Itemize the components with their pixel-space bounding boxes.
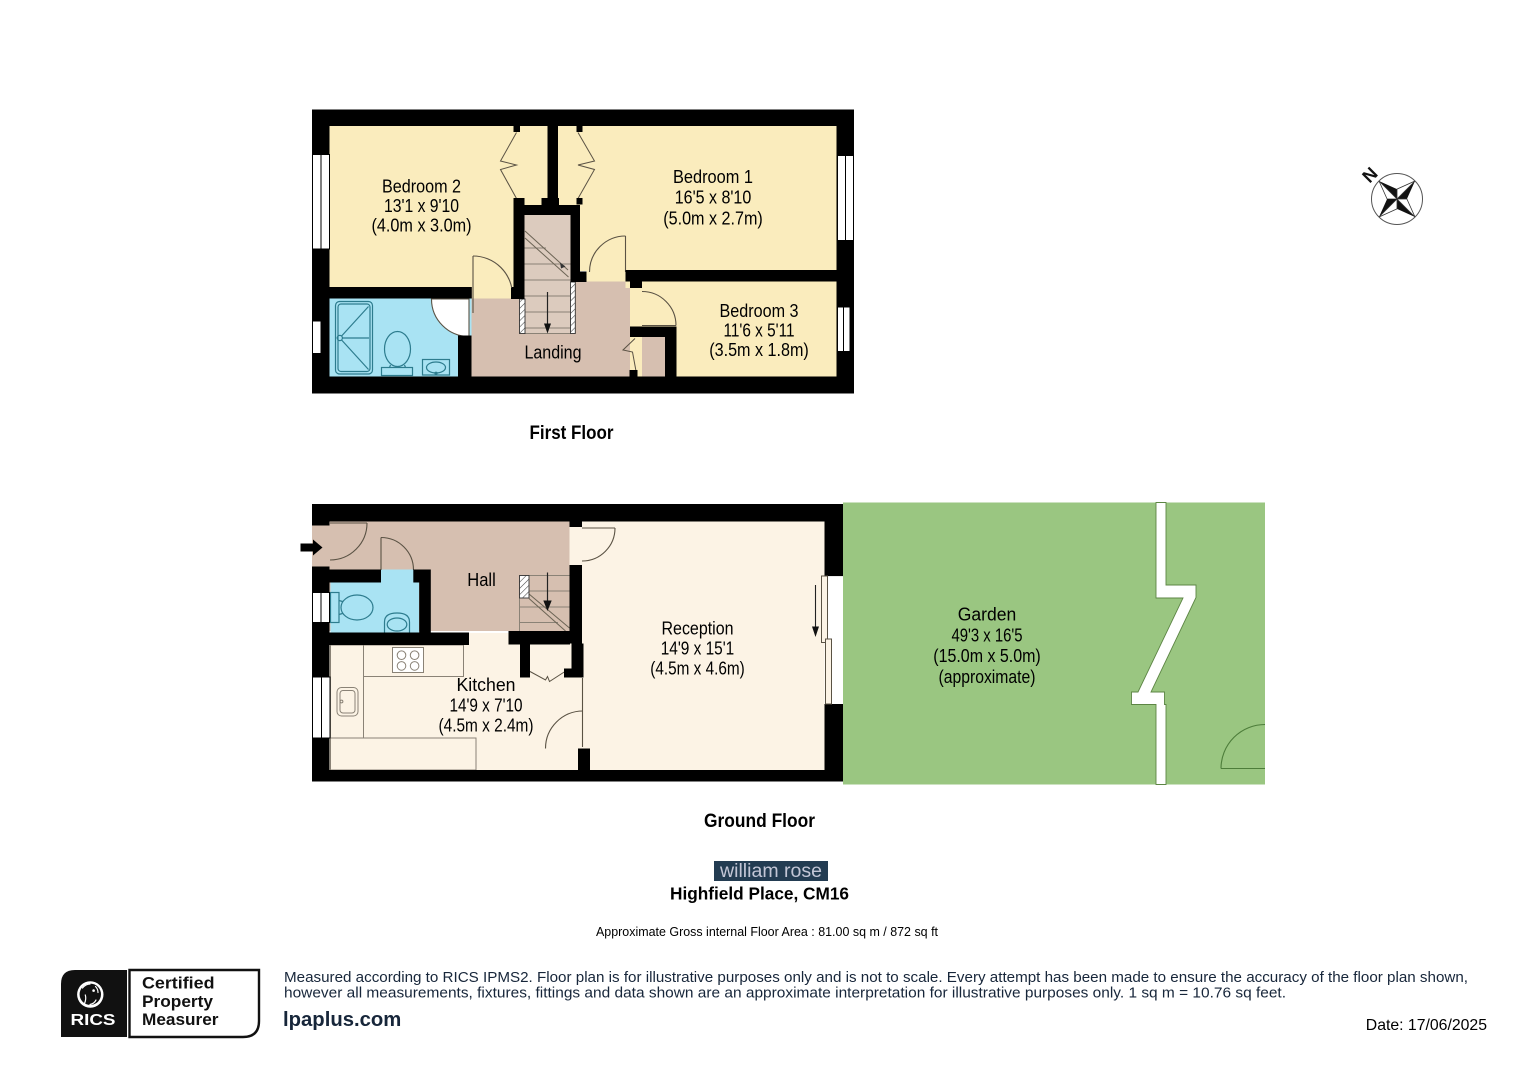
- svg-text:however all measurements, fixt: however all measurements, fixtures, fitt…: [284, 985, 1286, 1002]
- svg-text:13'1 x 9'10: 13'1 x 9'10: [384, 195, 459, 216]
- svg-text:Reception: Reception: [662, 618, 734, 639]
- svg-text:14'9 x 15'1: 14'9 x 15'1: [661, 638, 735, 659]
- svg-text:First Floor: First Floor: [530, 422, 614, 444]
- svg-text:Property: Property: [142, 992, 214, 1011]
- svg-text:Hall: Hall: [467, 569, 496, 590]
- svg-text:(4.5m x 4.6m): (4.5m x 4.6m): [650, 658, 745, 679]
- svg-text:(3.5m x 1.8m): (3.5m x 1.8m): [709, 339, 809, 360]
- svg-text:lpaplus.com: lpaplus.com: [283, 1009, 401, 1031]
- svg-text:49'3 x 16'5: 49'3 x 16'5: [952, 624, 1023, 645]
- svg-text:Bedroom 2: Bedroom 2: [382, 176, 461, 197]
- svg-text:Highfield Place, CM16: Highfield Place, CM16: [670, 884, 849, 904]
- svg-text:11'6 x 5'11: 11'6 x 5'11: [724, 320, 795, 341]
- svg-text:Measurer: Measurer: [142, 1010, 219, 1029]
- svg-text:16'5 x 8'10: 16'5 x 8'10: [675, 187, 752, 208]
- svg-text:Bedroom 1: Bedroom 1: [673, 166, 753, 187]
- svg-text:(4.5m x 2.4m): (4.5m x 2.4m): [439, 715, 534, 736]
- svg-text:N: N: [1358, 163, 1381, 186]
- svg-text:william rose: william rose: [719, 861, 822, 882]
- svg-text:Kitchen: Kitchen: [457, 674, 516, 695]
- svg-text:RICS: RICS: [71, 1012, 116, 1029]
- svg-text:Ground Floor: Ground Floor: [704, 810, 815, 832]
- svg-text:Landing: Landing: [525, 342, 582, 363]
- svg-text:Measured according to RICS IPM: Measured according to RICS IPMS2. Floor …: [284, 969, 1468, 986]
- svg-text:(approximate): (approximate): [939, 666, 1036, 687]
- svg-text:(5.0m x 2.7m): (5.0m x 2.7m): [663, 208, 763, 229]
- svg-text:Bedroom 3: Bedroom 3: [720, 300, 799, 321]
- svg-text:Garden: Garden: [958, 604, 1017, 625]
- svg-text:Certified: Certified: [142, 974, 215, 993]
- svg-text:Approximate Gross internal Flo: Approximate Gross internal Floor Area : …: [596, 925, 939, 939]
- svg-text:14'9 x 7'10: 14'9 x 7'10: [450, 695, 523, 716]
- svg-text:(4.0m x 3.0m): (4.0m x 3.0m): [372, 215, 472, 236]
- svg-text:Date: 17/06/2025: Date: 17/06/2025: [1366, 1017, 1487, 1034]
- svg-text:(15.0m x 5.0m): (15.0m x 5.0m): [933, 645, 1041, 666]
